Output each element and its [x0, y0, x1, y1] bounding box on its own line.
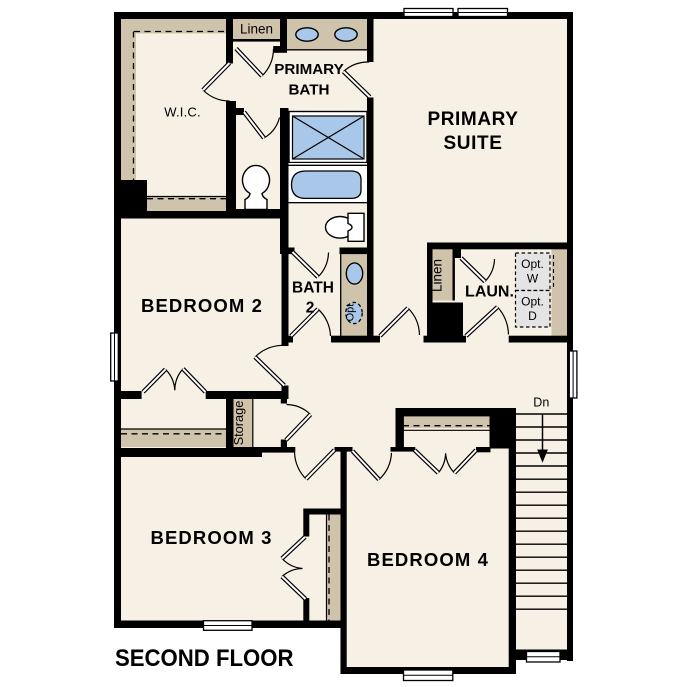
- svg-text:BEDROOM 4: BEDROOM 4: [367, 549, 489, 570]
- svg-text:Storage: Storage: [231, 401, 246, 446]
- svg-text:BEDROOM 2: BEDROOM 2: [141, 295, 263, 316]
- svg-text:LAUN.: LAUN.: [465, 284, 514, 301]
- svg-text:Opt: Opt: [345, 304, 357, 322]
- svg-text:SECOND FLOOR: SECOND FLOOR: [115, 645, 294, 672]
- svg-text:Linen: Linen: [430, 259, 445, 292]
- svg-text:Dn: Dn: [533, 395, 549, 409]
- svg-text:BEDROOM 3: BEDROOM 3: [151, 527, 273, 548]
- svg-text:Linen: Linen: [240, 22, 273, 37]
- svg-text:W.I.C.: W.I.C.: [164, 105, 201, 120]
